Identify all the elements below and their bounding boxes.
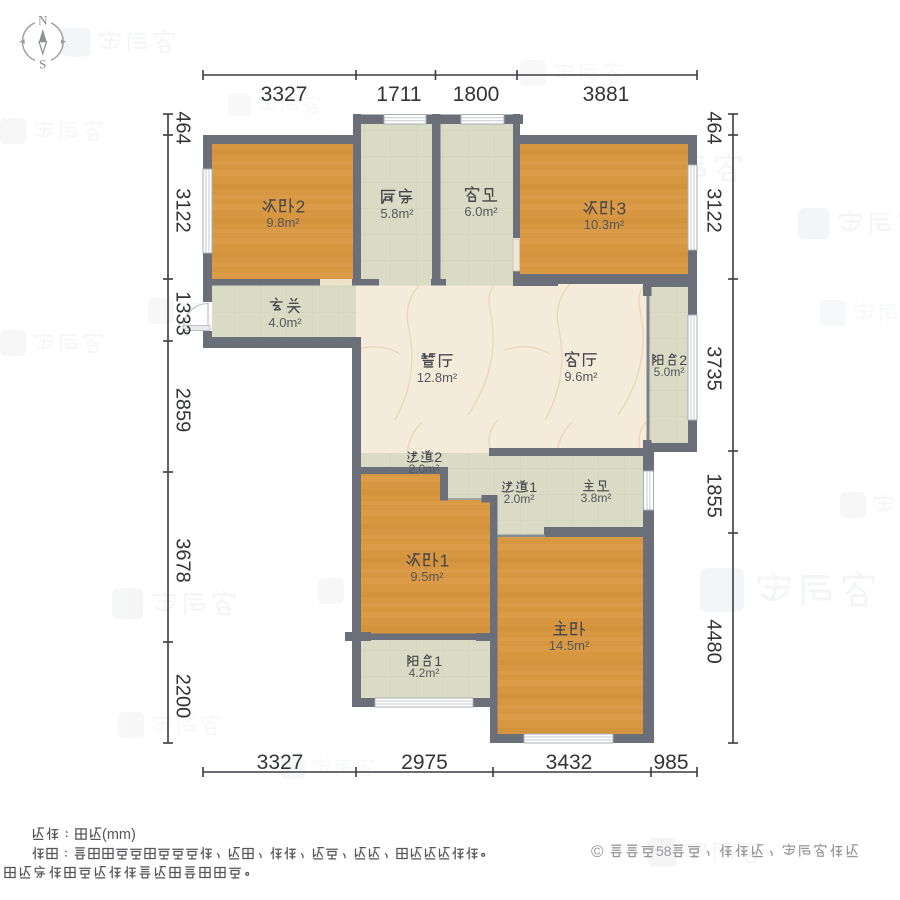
svg-text:3881: 3881 [583,83,630,106]
svg-text:2859: 2859 [172,388,194,433]
svg-text:3327: 3327 [261,83,308,106]
svg-text:3678: 3678 [172,538,194,583]
svg-text:3122: 3122 [703,188,725,233]
svg-text:1855: 1855 [703,473,725,518]
svg-text:5.8m²: 5.8m² [380,206,414,221]
svg-text:3: 3 [617,198,627,218]
svg-text:3327: 3327 [257,751,304,774]
svg-text:6.0m²: 6.0m² [464,204,498,219]
svg-text:3735: 3735 [703,346,725,391]
svg-text:9.8m²: 9.8m² [266,215,300,230]
svg-text:58: 58 [656,843,672,859]
svg-text:4.2m²: 4.2m² [409,666,440,680]
svg-text:4480: 4480 [703,619,725,664]
svg-text:4.0m²: 4.0m² [268,315,302,330]
svg-text:1711: 1711 [376,83,421,106]
svg-text:©: © [591,842,604,861]
svg-text:12.8m²: 12.8m² [417,370,458,385]
svg-text:9.5m²: 9.5m² [410,569,444,584]
svg-text:3432: 3432 [546,751,593,774]
svg-text:1333: 1333 [172,291,194,336]
svg-text:1800: 1800 [453,83,500,106]
svg-text:1: 1 [440,550,450,570]
svg-text:14.5m²: 14.5m² [549,638,590,653]
svg-text:(mm): (mm) [102,827,136,843]
svg-text:464: 464 [703,111,725,144]
svg-text:N: N [38,13,48,28]
svg-text:S: S [39,57,46,72]
svg-text:10.3m²: 10.3m² [584,217,625,232]
svg-text:2.0m²: 2.0m² [504,492,535,506]
svg-text:985: 985 [653,751,688,774]
svg-text:3.8m²: 3.8m² [581,491,612,505]
svg-text:464: 464 [172,111,194,144]
svg-text:2.0m²: 2.0m² [409,462,440,476]
svg-text:2: 2 [296,196,306,216]
svg-text:2200: 2200 [172,674,194,719]
svg-text:9.6m²: 9.6m² [564,369,598,384]
svg-text:3122: 3122 [172,188,194,233]
svg-text:2975: 2975 [401,751,448,774]
svg-text:5.0m²: 5.0m² [654,365,685,379]
